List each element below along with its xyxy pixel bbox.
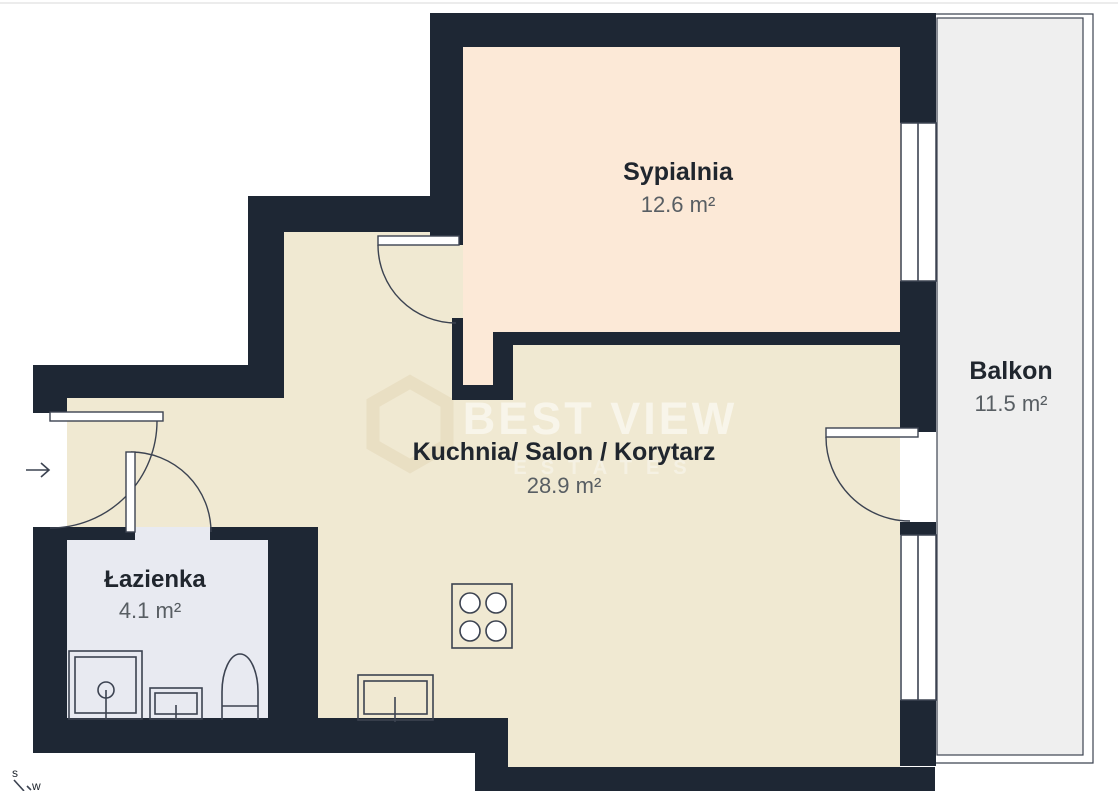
bedroom-window <box>901 123 936 281</box>
room-area-bathroom: 4.1 m² <box>119 598 181 623</box>
room-area-balcony: 11.5 m² <box>975 391 1048 416</box>
room-label-bedroom: Sypialnia <box>623 158 734 186</box>
room-label-bathroom: Łazienka <box>104 566 206 593</box>
room-label-balcony: Balkon <box>969 357 1052 385</box>
compass-west-label: w <box>31 779 41 791</box>
page-top-border <box>0 2 1118 4</box>
room-balcony-floor <box>937 18 1083 755</box>
room-label-living: Kuchnia/ Salon / Korytarz <box>413 438 716 466</box>
compass-south-label: s <box>12 766 18 780</box>
room-area-bedroom: 12.6 m² <box>641 192 716 217</box>
room-area-living: 28.9 m² <box>527 473 602 498</box>
entry-arrow-icon <box>26 463 49 477</box>
floor-plan-page: BEST VIEW ESTATES <box>0 0 1118 791</box>
watermark-brand: BEST VIEW <box>463 393 738 444</box>
living-room-window <box>901 535 936 700</box>
compass-icon: s w <box>12 766 41 791</box>
floor-plan-svg: BEST VIEW ESTATES <box>0 0 1118 791</box>
